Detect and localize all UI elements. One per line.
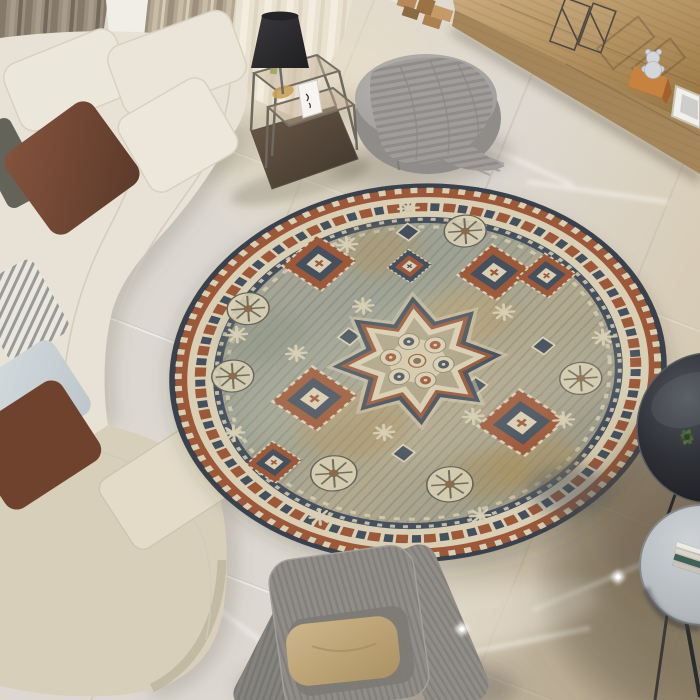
rug-motif-snowflake: [398, 200, 419, 217]
rug-motif-snowflake: [470, 507, 491, 524]
rug-motif-snowflake: [309, 509, 330, 526]
firewood: [393, 0, 454, 32]
rug-motif-snowflake: [226, 326, 247, 343]
scene-art: [0, 0, 700, 700]
rug-motif-snowflake: [336, 236, 357, 253]
rug-motif-snowflake: [493, 304, 514, 321]
living-room-scene: [0, 0, 700, 700]
lamp-shade-top: [262, 12, 299, 21]
